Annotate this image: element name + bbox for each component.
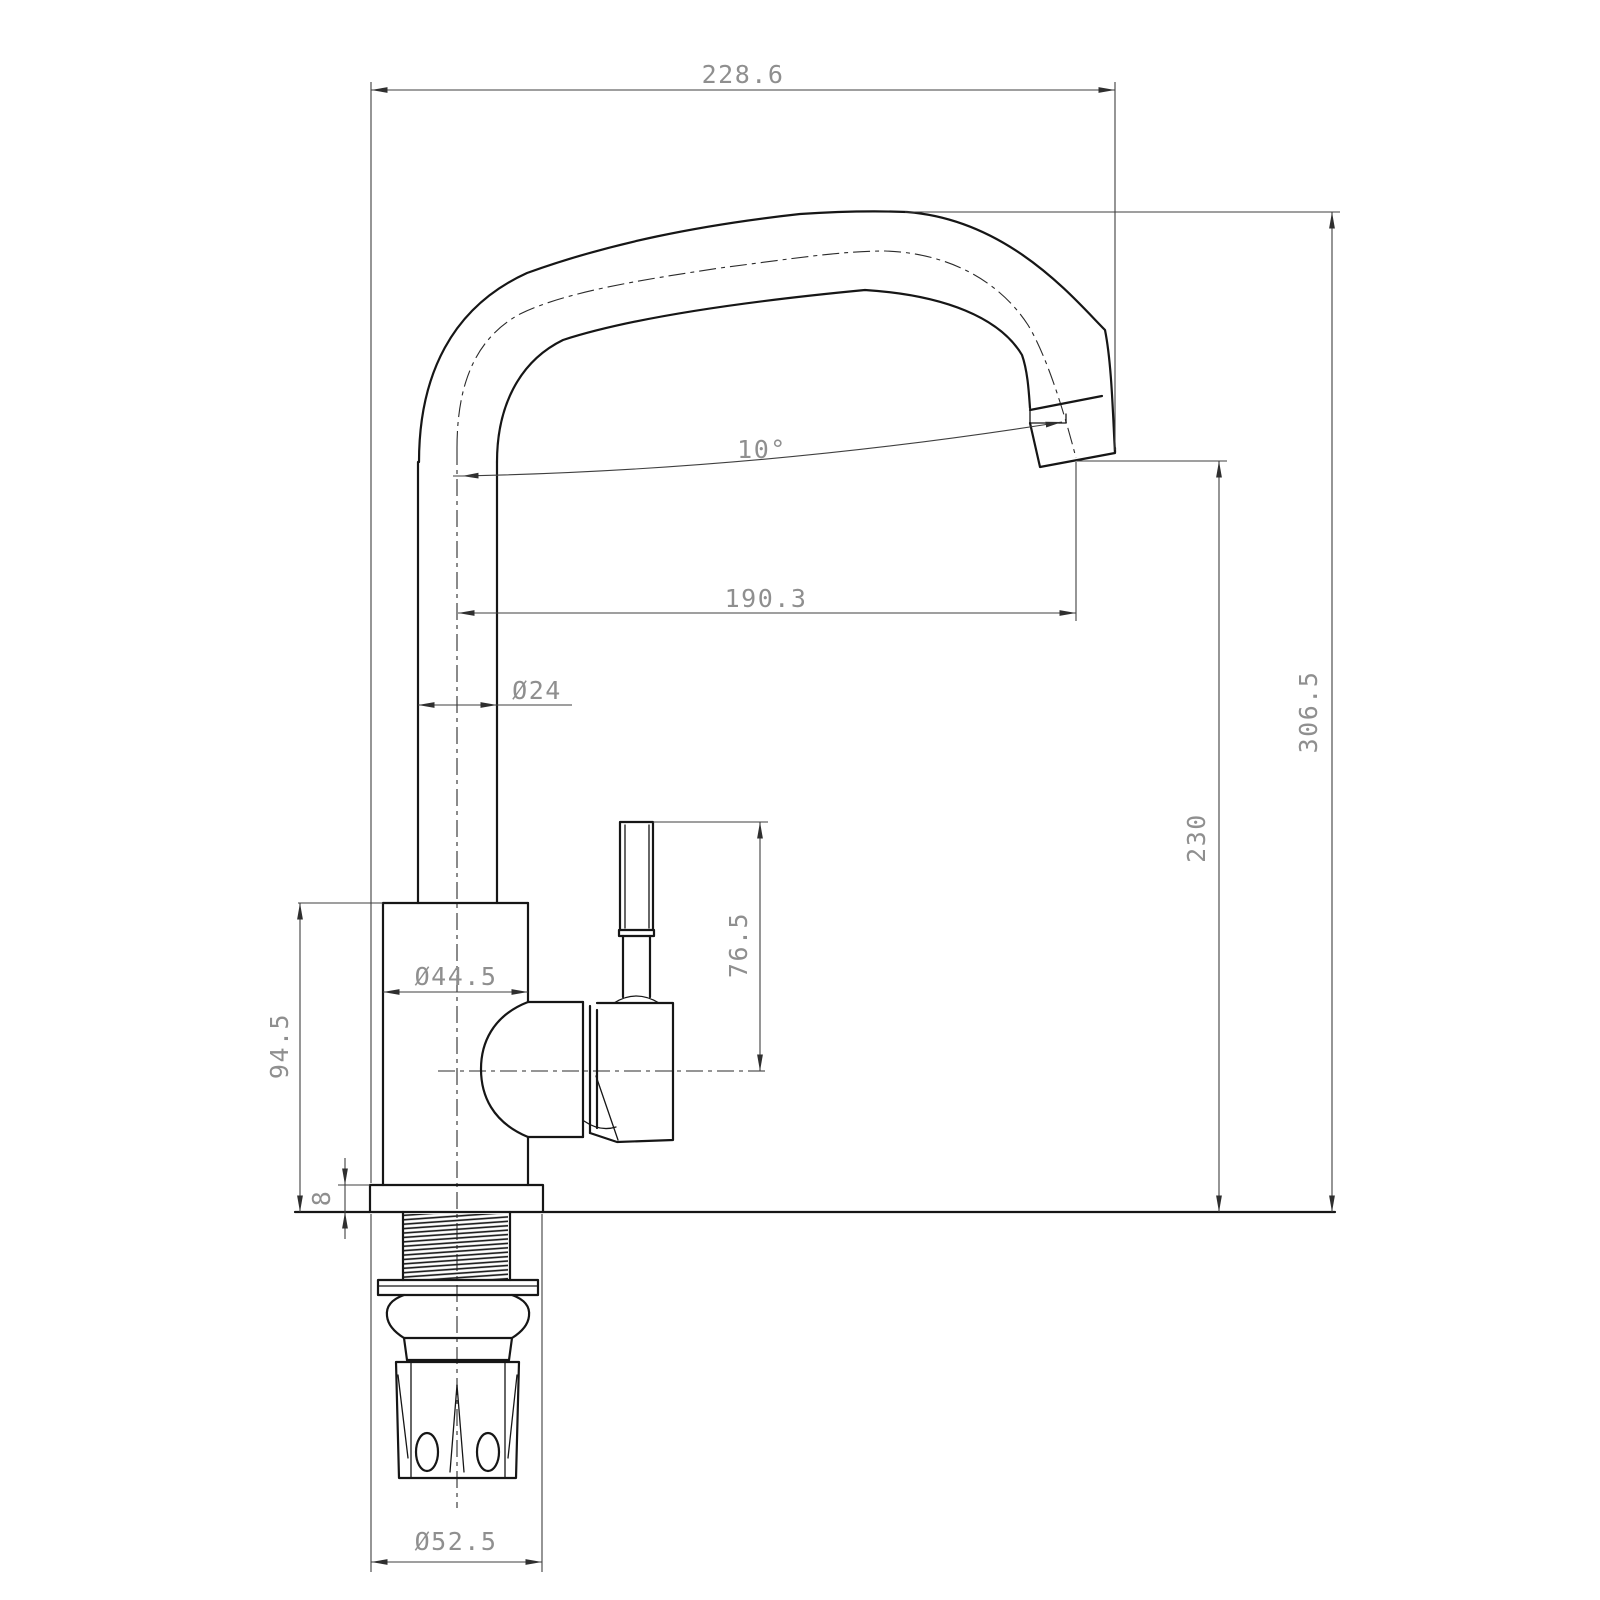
valve-assembly	[481, 996, 673, 1142]
connector-chamfer-right	[508, 1375, 517, 1458]
oval-slot-right	[477, 1433, 499, 1471]
undermount-parts	[378, 1212, 538, 1478]
handle-lever	[619, 822, 654, 997]
bell-left	[387, 1295, 404, 1338]
spout-centerline	[457, 251, 1076, 458]
dimension-lines	[300, 90, 1332, 1562]
nozzle-step	[1030, 410, 1066, 423]
connector-chamfer-left	[398, 1375, 408, 1458]
band-left	[404, 1338, 407, 1360]
faucet-outline	[295, 211, 1335, 1478]
dim-body-height-label: 94.5	[265, 1013, 294, 1079]
nozzle-outlet-edge	[1030, 423, 1115, 467]
dim-spout-reach-label: 190.3	[725, 584, 808, 613]
faucet-technical-drawing: 228.6 10° 190.3 Ø24 Ø44.5 94.5 8 76.5 30…	[0, 0, 1600, 1600]
housing-cartridge-slant	[596, 1076, 618, 1140]
tap-body	[383, 903, 528, 1185]
band-right	[509, 1338, 512, 1360]
valve-dome	[481, 1002, 528, 1137]
locknut-flange	[378, 1280, 538, 1295]
split-wedge-left	[450, 1385, 457, 1472]
shank-threads	[404, 1214, 508, 1279]
dim-overall-height-label: 306.5	[1294, 671, 1323, 754]
dimension-labels: 228.6 10° 190.3 Ø24 Ø44.5 94.5 8 76.5 30…	[265, 60, 1323, 1556]
bell-right	[512, 1295, 529, 1338]
oval-slot-left	[416, 1433, 438, 1471]
dim-outlet-height-label: 230	[1182, 813, 1211, 863]
nozzle-joint-line	[1030, 396, 1102, 410]
split-wedge-right	[457, 1385, 464, 1472]
dim-body-diameter-label: Ø44.5	[415, 962, 498, 991]
dim-pipe-diameter-label: Ø24	[512, 676, 562, 705]
dim-flange-thickness-label: 8	[307, 1190, 336, 1207]
dim-handle-height-label: 76.5	[724, 912, 753, 978]
dim-base-diameter-label: Ø52.5	[415, 1527, 498, 1556]
housing-outline	[590, 1003, 673, 1142]
nozzle	[1030, 396, 1115, 467]
drawing-page: 228.6 10° 190.3 Ø24 Ø44.5 94.5 8 76.5 30…	[0, 0, 1600, 1600]
dim-overall-width-label: 228.6	[702, 60, 785, 89]
dim-spout-angle-label: 10°	[737, 435, 787, 464]
base-and-counter	[295, 1185, 1335, 1212]
lever-joint	[619, 930, 654, 936]
